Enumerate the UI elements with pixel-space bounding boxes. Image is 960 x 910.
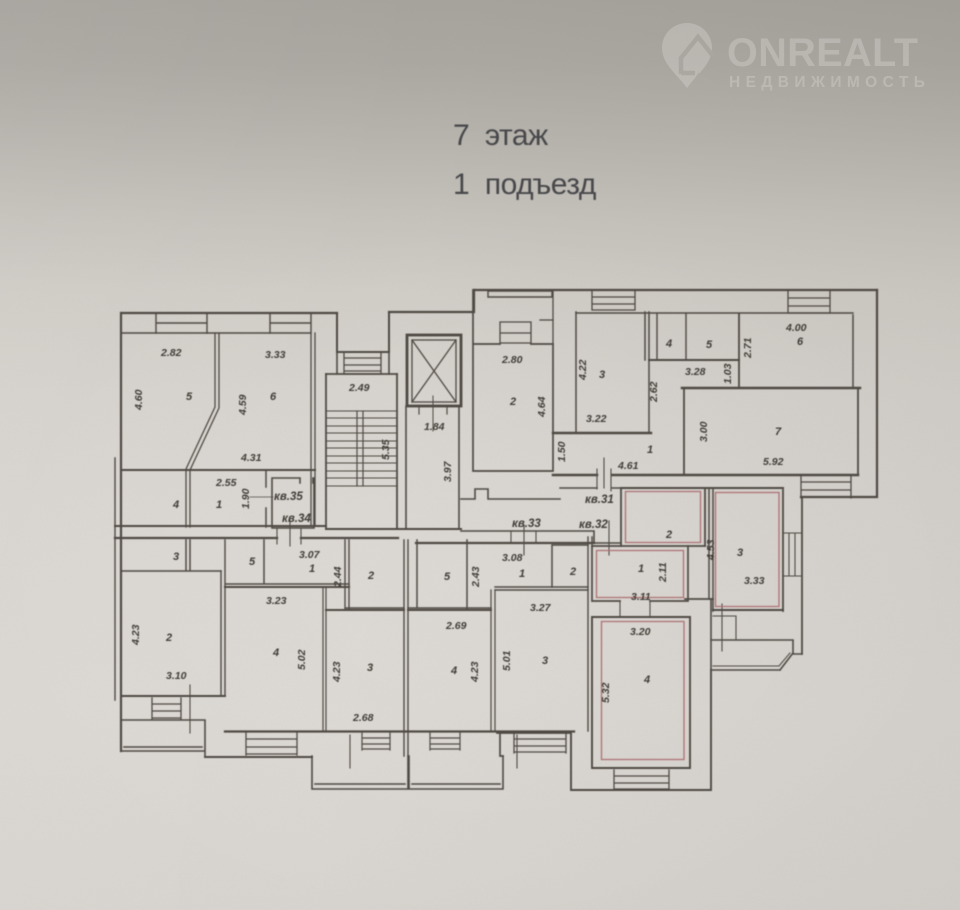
svg-text:5: 5 bbox=[186, 391, 193, 403]
svg-text:2: 2 bbox=[569, 566, 576, 578]
svg-text:3.28: 3.28 bbox=[685, 366, 706, 378]
svg-text:4: 4 bbox=[643, 674, 650, 686]
svg-text:7: 7 bbox=[775, 426, 782, 438]
svg-text:4.22: 4.22 bbox=[577, 359, 589, 381]
svg-text:4: 4 bbox=[450, 665, 457, 677]
svg-text:3.11: 3.11 bbox=[631, 591, 651, 603]
svg-text:2.80: 2.80 bbox=[501, 354, 523, 366]
svg-text:3: 3 bbox=[542, 655, 548, 667]
svg-text:1: 1 bbox=[309, 563, 315, 575]
svg-text:2.49: 2.49 bbox=[348, 382, 370, 394]
svg-text:4: 4 bbox=[665, 338, 672, 350]
svg-text:1: 1 bbox=[647, 444, 653, 456]
svg-text:5.35: 5.35 bbox=[380, 439, 392, 460]
svg-text:4.31: 4.31 bbox=[240, 452, 262, 464]
svg-text:4: 4 bbox=[272, 647, 279, 659]
svg-text:1.90: 1.90 bbox=[240, 488, 252, 509]
svg-text:2: 2 bbox=[367, 570, 374, 582]
svg-text:3.20: 3.20 bbox=[630, 626, 651, 638]
svg-text:5.01: 5.01 bbox=[501, 650, 513, 671]
svg-text:1: 1 bbox=[216, 499, 222, 511]
svg-text:3.08: 3.08 bbox=[502, 552, 523, 564]
svg-text:кв.34: кв.34 bbox=[282, 513, 311, 525]
svg-text:1.50: 1.50 bbox=[556, 441, 568, 462]
svg-text:6: 6 bbox=[797, 336, 804, 348]
svg-text:5: 5 bbox=[444, 571, 451, 583]
svg-text:3.33: 3.33 bbox=[265, 349, 286, 361]
svg-text:2.62: 2.62 bbox=[648, 381, 660, 403]
svg-text:5.92: 5.92 bbox=[763, 456, 784, 468]
svg-text:4.23: 4.23 bbox=[331, 661, 343, 683]
svg-text:4.53: 4.53 bbox=[705, 539, 717, 561]
svg-text:2.69: 2.69 bbox=[445, 620, 467, 632]
svg-text:6: 6 bbox=[270, 391, 277, 403]
svg-text:4: 4 bbox=[172, 499, 179, 511]
svg-text:2.55: 2.55 bbox=[215, 477, 237, 489]
svg-text:1.03: 1.03 bbox=[722, 363, 734, 384]
svg-text:3: 3 bbox=[737, 547, 743, 559]
svg-text:2.44: 2.44 bbox=[332, 566, 344, 588]
svg-text:2.82: 2.82 bbox=[160, 347, 182, 359]
svg-text:4.23: 4.23 bbox=[469, 661, 481, 683]
svg-text:3: 3 bbox=[367, 662, 373, 674]
svg-text:4.59: 4.59 bbox=[237, 394, 249, 416]
svg-text:1: 1 bbox=[519, 568, 525, 580]
svg-text:2.11: 2.11 bbox=[657, 562, 669, 583]
svg-text:кв.33: кв.33 bbox=[512, 518, 541, 530]
svg-text:5.32: 5.32 bbox=[600, 682, 612, 703]
svg-text:4.00: 4.00 bbox=[785, 322, 807, 334]
svg-text:2: 2 bbox=[665, 529, 672, 541]
svg-text:2.43: 2.43 bbox=[470, 566, 482, 588]
svg-text:1.84: 1.84 bbox=[424, 421, 445, 433]
svg-text:3.00: 3.00 bbox=[698, 421, 710, 442]
svg-text:кв.35: кв.35 bbox=[274, 491, 303, 503]
svg-text:4.61: 4.61 bbox=[617, 460, 639, 472]
svg-text:3.33: 3.33 bbox=[744, 575, 765, 587]
svg-text:3.22: 3.22 bbox=[586, 413, 607, 425]
svg-text:4.60: 4.60 bbox=[133, 389, 145, 411]
svg-text:5: 5 bbox=[249, 556, 256, 568]
svg-text:4.64: 4.64 bbox=[536, 396, 548, 418]
svg-text:3.97: 3.97 bbox=[442, 460, 454, 482]
svg-text:4.23: 4.23 bbox=[130, 624, 142, 646]
svg-text:5.02: 5.02 bbox=[296, 649, 308, 670]
svg-text:3: 3 bbox=[173, 551, 179, 563]
svg-text:5: 5 bbox=[706, 339, 713, 351]
svg-text:1: 1 bbox=[638, 563, 644, 575]
svg-text:3.07: 3.07 bbox=[299, 549, 321, 561]
svg-text:2.68: 2.68 bbox=[352, 712, 374, 724]
svg-text:3.27: 3.27 bbox=[530, 602, 552, 614]
svg-text:3: 3 bbox=[599, 369, 605, 381]
svg-text:кв.32: кв.32 bbox=[579, 519, 608, 531]
svg-text:2: 2 bbox=[165, 632, 172, 644]
svg-text:3.10: 3.10 bbox=[166, 670, 187, 682]
svg-text:3.23: 3.23 bbox=[266, 595, 287, 607]
svg-text:кв.31: кв.31 bbox=[585, 494, 614, 506]
svg-text:2.71: 2.71 bbox=[742, 337, 754, 359]
svg-text:2: 2 bbox=[509, 396, 516, 408]
